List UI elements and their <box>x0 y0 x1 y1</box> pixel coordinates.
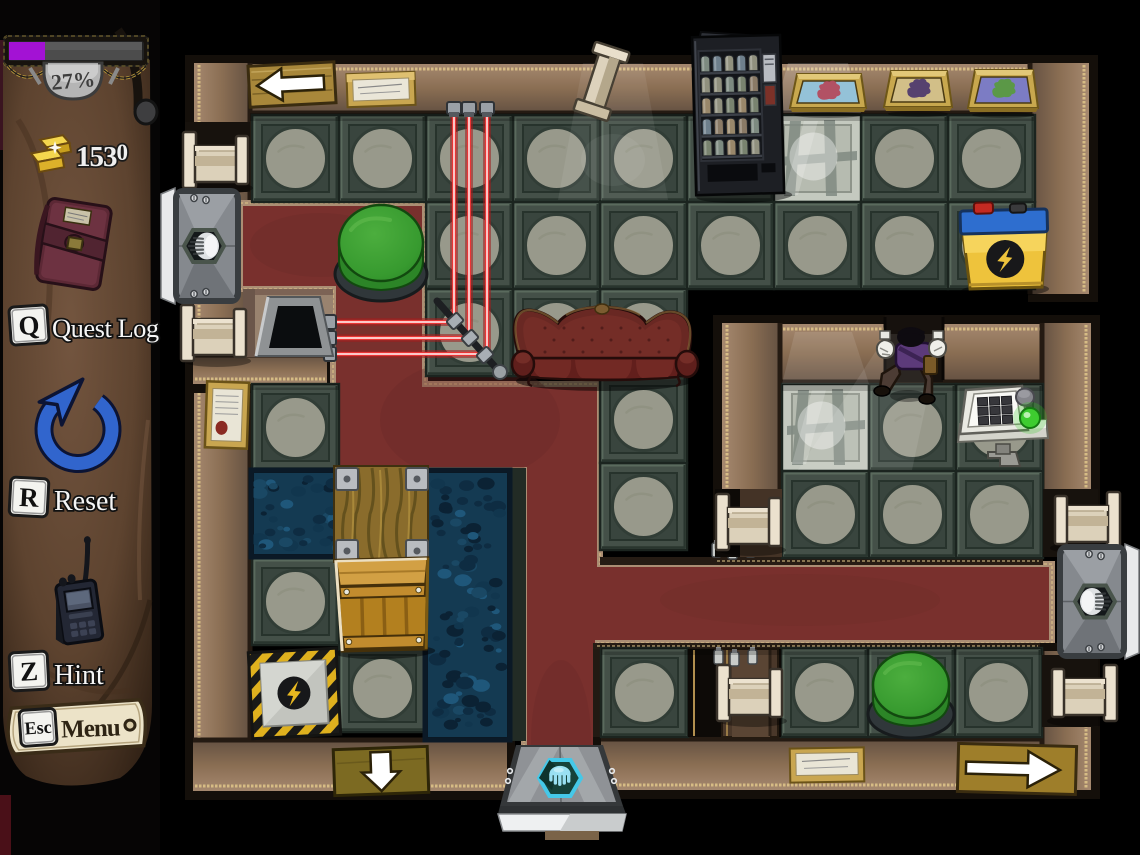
svg-text:Q: Q <box>18 310 41 341</box>
svg-text:Reset: Reset <box>54 486 116 517</box>
svg-text:R: R <box>18 482 40 513</box>
svg-text:Quest Log: Quest Log <box>52 313 159 343</box>
svg-text:Esc: Esc <box>24 717 52 739</box>
svg-text:Z: Z <box>19 656 39 687</box>
svg-text:Hint: Hint <box>54 660 104 691</box>
svg-text:27%: 27% <box>50 66 96 95</box>
svg-text:Menu: Menu <box>61 714 122 743</box>
